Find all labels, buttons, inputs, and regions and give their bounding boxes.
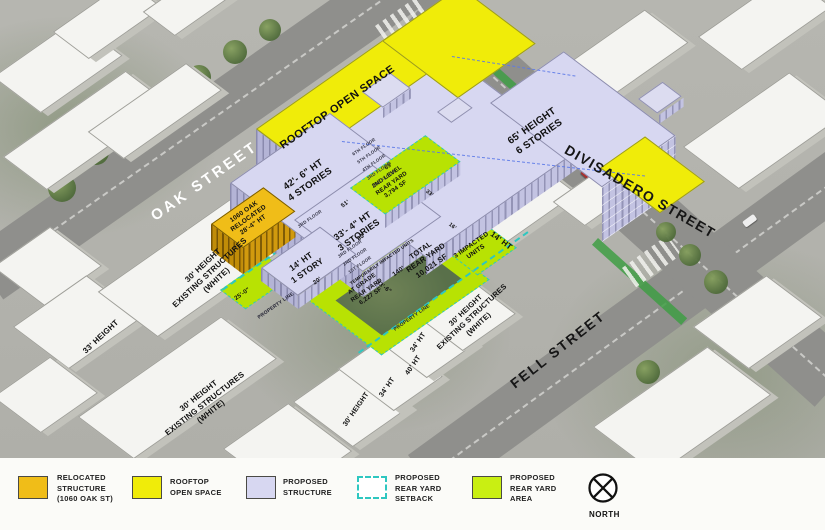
tree [704,270,728,294]
existing-building [705,0,825,73]
tree [656,222,676,242]
north-label: NORTH [589,510,620,519]
existing-building [150,0,247,39]
legend-swatch-proposed [246,476,276,499]
legend-label-rooftop: ROOFTOP OPEN SPACE [170,477,222,498]
tree [636,360,660,384]
legend-label-rear-yard: PROPOSED REAR YARD AREA [510,473,556,505]
legend: RELOCATED STRUCTURE (1060 OAK ST) ROOFTO… [0,458,825,530]
north-arrow-icon [585,470,621,506]
legend-label-proposed: PROPOSED STRUCTURE [283,477,332,498]
tree [259,19,281,41]
tree [223,40,247,64]
site-plan-figure: OAK STREET DIVISADERO STREET FELL STREET… [0,0,825,530]
legend-swatch-rooftop [132,476,162,499]
legend-swatch-rear-yard [472,476,502,499]
aerial-map: OAK STREET DIVISADERO STREET FELL STREET… [0,0,825,458]
legend-label-setback: PROPOSED REAR YARD SETBACK [395,473,441,505]
legend-label-relocated: RELOCATED STRUCTURE (1060 OAK ST) [57,473,113,505]
tree [679,244,701,266]
legend-swatch-relocated [18,476,48,499]
legend-swatch-setback [357,476,387,499]
